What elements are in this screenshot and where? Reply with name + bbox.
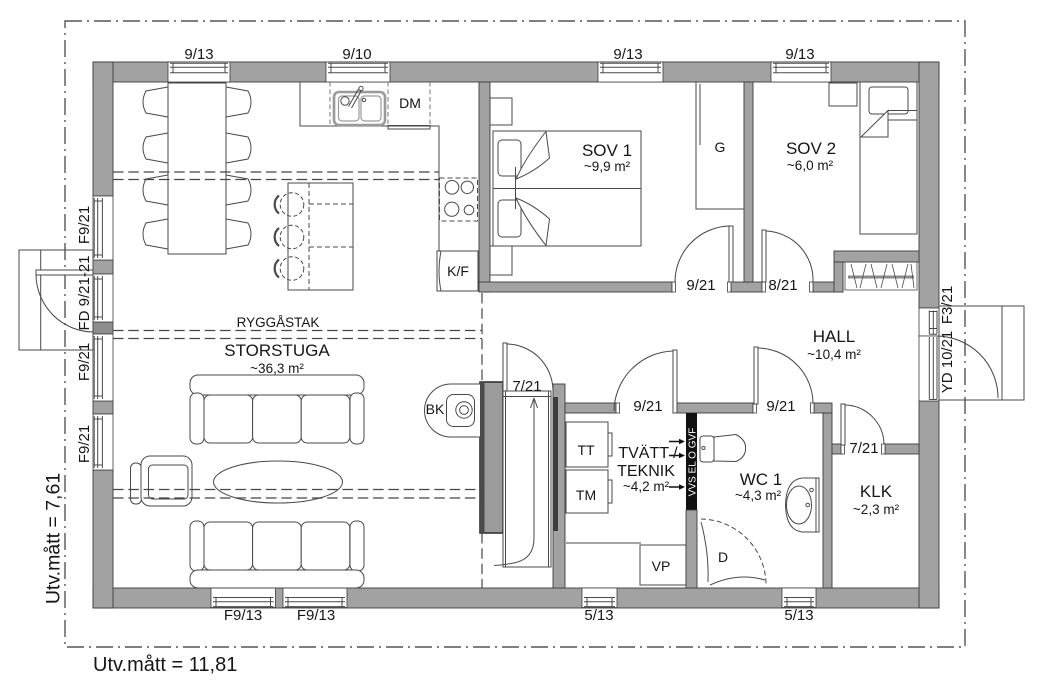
svg-text:~6,0 m²: ~6,0 m² bbox=[787, 158, 834, 173]
svg-text:STORSTUGA: STORSTUGA bbox=[224, 341, 330, 360]
svg-text:VP: VP bbox=[652, 558, 671, 574]
svg-text:VVS EL O GVF: VVS EL O GVF bbox=[688, 428, 699, 497]
svg-text:SOV 1: SOV 1 bbox=[582, 141, 632, 160]
svg-text:F9/13: F9/13 bbox=[224, 607, 262, 624]
svg-text:F3/21: F3/21 bbox=[939, 286, 956, 324]
svg-text:~4,2 m²: ~4,2 m² bbox=[623, 479, 670, 494]
svg-text:K/F: K/F bbox=[447, 263, 469, 279]
svg-text:9/13: 9/13 bbox=[785, 46, 814, 63]
svg-text:9/13: 9/13 bbox=[613, 46, 642, 63]
svg-text:TVÄTT /: TVÄTT / bbox=[618, 444, 678, 462]
svg-text:9/21: 9/21 bbox=[633, 398, 662, 415]
svg-text:FD 9/21-21: FD 9/21-21 bbox=[76, 255, 93, 330]
svg-text:BK: BK bbox=[426, 401, 445, 417]
svg-text:9/10: 9/10 bbox=[342, 46, 371, 63]
svg-text:8/21: 8/21 bbox=[768, 277, 797, 294]
svg-text:KLK: KLK bbox=[860, 482, 893, 501]
svg-text:7/21: 7/21 bbox=[512, 378, 541, 395]
svg-text:~36,3 m²: ~36,3 m² bbox=[250, 361, 304, 376]
svg-text:HALL: HALL bbox=[813, 327, 856, 346]
svg-text:F9/21: F9/21 bbox=[76, 343, 93, 381]
svg-text:SOV 2: SOV 2 bbox=[786, 139, 836, 158]
svg-text:TT: TT bbox=[577, 442, 595, 458]
svg-text:F9/21: F9/21 bbox=[76, 425, 93, 463]
svg-text:~4,3 m²: ~4,3 m² bbox=[735, 488, 782, 503]
svg-text:9/21: 9/21 bbox=[686, 277, 715, 294]
svg-text:F9/21: F9/21 bbox=[76, 206, 93, 244]
svg-text:9/21: 9/21 bbox=[766, 398, 795, 415]
svg-text:WC 1: WC 1 bbox=[740, 470, 783, 489]
svg-text:D: D bbox=[718, 549, 728, 565]
svg-text:G: G bbox=[715, 139, 726, 155]
svg-text:TEKNIK: TEKNIK bbox=[617, 463, 675, 480]
svg-text:RYGGÅSTAK: RYGGÅSTAK bbox=[237, 315, 320, 330]
svg-text:5/13: 5/13 bbox=[584, 607, 613, 624]
svg-text:7/21: 7/21 bbox=[849, 440, 878, 457]
svg-text:Utv.mått = 7,61: Utv.mått = 7,61 bbox=[43, 473, 65, 604]
svg-text:TM: TM bbox=[576, 487, 596, 503]
svg-text:~10,4 m²: ~10,4 m² bbox=[807, 347, 861, 362]
svg-text:YD 10/21: YD 10/21 bbox=[939, 331, 956, 394]
svg-text:5/13: 5/13 bbox=[784, 607, 813, 624]
svg-text:Utv.mått = 11,81: Utv.mått = 11,81 bbox=[93, 654, 237, 676]
svg-text:9/13: 9/13 bbox=[184, 46, 213, 63]
svg-text:F9/13: F9/13 bbox=[297, 607, 335, 624]
svg-text:~9,9 m²: ~9,9 m² bbox=[584, 159, 631, 174]
svg-text:DM: DM bbox=[399, 95, 421, 111]
svg-text:~2,3 m²: ~2,3 m² bbox=[853, 502, 900, 517]
